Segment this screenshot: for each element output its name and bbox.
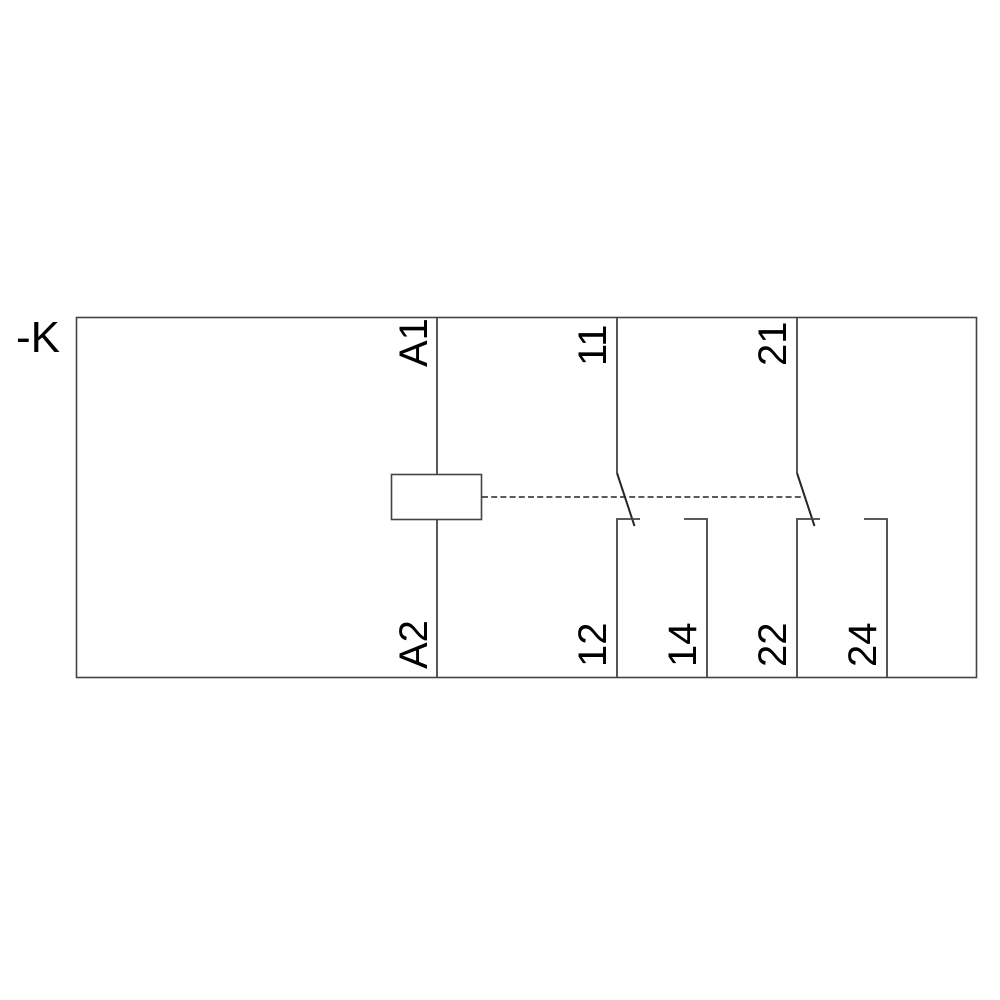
terminal-label-21: 21	[751, 322, 795, 367]
contact1-moving-blade	[617, 473, 635, 526]
contact2-nc-conductor	[797, 519, 820, 678]
contact2-moving-blade	[797, 473, 815, 526]
terminal-label-14: 14	[661, 623, 705, 668]
device-designation-label: -K	[16, 313, 60, 362]
terminal-label-a1: A1	[392, 318, 436, 367]
contact1-nc-conductor	[617, 519, 640, 678]
terminal-label-11: 11	[571, 324, 615, 366]
relay-schematic-page: -K A1 A2 11 12 14 21 22 24	[0, 0, 1000, 1000]
terminal-label-a2: A2	[392, 620, 436, 669]
relay-schematic: -K A1 A2 11 12 14 21 22 24	[0, 0, 1000, 1000]
coil-symbol	[392, 475, 482, 520]
terminal-label-24: 24	[841, 623, 885, 668]
terminal-label-12: 12	[571, 623, 615, 668]
terminal-label-22: 22	[751, 623, 795, 668]
